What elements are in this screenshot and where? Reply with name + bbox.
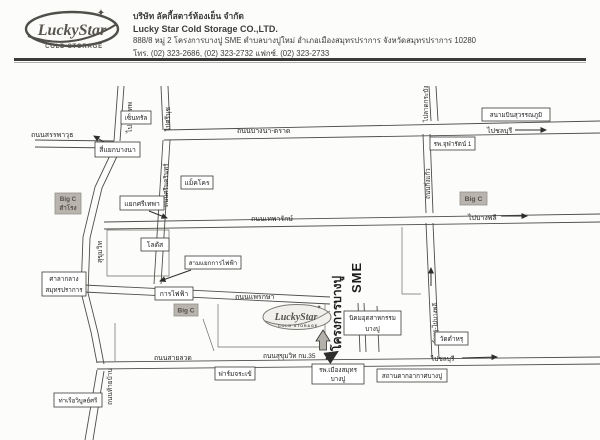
svg-text:วัดตำหรุ: วัดตำหรุ [440,335,464,343]
road-bangna-trat [164,133,600,140]
svg-text:แม็คโคร: แม็คโคร [184,178,210,187]
map-logo-star-icon: ✦ [316,304,321,311]
svg-text:แยกศรีเทพา: แยกศรีเทพา [124,200,160,208]
svg-text:โลตัส: โลตัส [147,240,164,249]
block-west-of-tamru [402,227,421,294]
block-edge-diagonal [203,319,214,351]
map-logo-subtitle-text: COLD STORAGE [278,324,318,328]
sukhumvit-km35-arrow [326,352,337,359]
svg-text:สำโรง: สำโรง [59,204,76,212]
place-box-hospital-bangpu: รพ.เมืองสมุทร บางปู [312,364,364,384]
svg-text:สมุทรปราการ: สมุทรปราการ [45,287,83,294]
place-box-samyaek-kanfaifa: สามแยกการไฟฟ้า [185,256,241,269]
place-box-lotus: โลตัส [141,238,169,251]
road-sukhumvit-north [114,86,118,141]
place-box-crocodile-farm: ฟาร์มจระเข้ [215,367,255,380]
road-bangna-trat [164,121,600,130]
svg-text:บางปู: บางปู [331,376,346,383]
svg-text:Big C: Big C [178,308,195,315]
place-box-suvarnabhumi-airport: สนามบินสุวรรณภูมิ [482,108,550,121]
map-logo-brand-text: LuckyStar [274,312,318,323]
road-label-kingkaeo: ถนนกิ่งแก้ว [423,168,432,199]
svg-text:ท่าเรือวิบูลย์ศรี: ท่าเรือวิบูลย์ศรี [59,397,98,405]
scanned-letterhead-map-page: { "logo": { "brand": "LuckyStar", "cold_… [0,0,600,440]
place-box-cityhall: ศาลากลาง สมุทรปราการ [42,272,86,296]
svg-text:รพ.จุฬารัตน์ 1: รพ.จุฬารัตน์ 1 [434,140,472,148]
road-label-to-latkrabang: ไปลาดกระบัง [422,86,430,123]
road-label-to-chonburi-top: ไปชลบุรี [486,126,512,135]
road-labels: ไปกรุงเทพ ถนนสรรพาวุธ ไปศรีนุช ถนนบางนา-… [31,86,512,405]
place-box-kanfaifa: การไฟฟ้า [155,287,193,300]
road-label-sanphawut: ถนนสรรพาวุธ [31,132,73,139]
road-label-phraeksa: ถนนแพรกษา [235,294,275,301]
place-box-makro: แม็คโคร [181,176,213,189]
svg-text:สี่แยกบางนา: สี่แยกบางนา [99,145,136,154]
svg-text:การไฟฟ้า: การไฟฟ้า [160,290,189,298]
road-latkrabang [436,86,438,121]
place-box-srithepha: แยกศรีเทพา [120,196,164,210]
road-tamru [426,223,432,359]
road-srinakarin [154,140,163,284]
place-box-bigc-paknam: Big C [174,304,198,316]
road-label-to-chonburi-bottom: ไปชลบุรี [430,355,455,363]
place-box-bangpu-resort: สถานตากอากาศบางปู [377,369,447,382]
road-label-sailuat: ถนนสายลวด [154,355,192,362]
road-label-thaiban: ถนนท้ายบ้าน [106,368,114,405]
label-sme: SME [349,262,364,293]
place-box-bigc-samrong: Big C สำโรง [55,193,81,214]
road-label-to-bangphli: ไปบางพลี [467,213,497,222]
road-srinakarin-north [161,86,163,130]
svg-text:ฟาร์มจระเข้: ฟาร์มจระเข้ [218,370,251,378]
svg-text:สามแยกการไฟฟ้า: สามแยกการไฟฟ้า [189,259,238,267]
place-box-pier: ท่าเรือวิบูลย์ศรี [54,393,102,407]
svg-text:สถานตากอากาศบางปู: สถานตากอากาศบางปู [382,373,442,380]
road-label-theparak: ถนนเทพารักษ์ [251,215,293,223]
svg-text:นิคมอุตสาหกรรม: นิคมอุตสาหกรรม [349,314,396,322]
location-map: ไปกรุงเทพ ถนนสรรพาวุธ ไปศรีนุช ถนนบางนา-… [0,0,600,440]
road-theparak [104,214,600,222]
label-project-bangpu: โครงการบางปู [329,276,345,352]
svg-text:บางปู: บางปู [365,326,380,333]
road-label-bangna-trat: ถนนบางนา-ตราด [237,128,290,135]
place-box-bigc-kingkaeo: Big C [460,192,487,205]
place-box-wat-tamru: วัดตำหรุ [435,332,468,345]
road-phraeksa [84,292,330,304]
svg-text:Big C: Big C [465,196,483,203]
svg-text:Big C: Big C [60,196,77,203]
svg-text:เซ็นทรัล: เซ็นทรัล [125,113,148,122]
road-phraeksa [84,285,330,297]
svg-text:รพ.เมืองสมุทร: รพ.เมืองสมุทร [319,366,358,374]
road-label-sukhumvit: สุขุมวิท [96,240,104,263]
road-label-to-srinuch: ไปศรีนุช [164,107,172,132]
block-lotus [107,230,169,276]
samyaek-kanfaifa-pointer [160,270,191,281]
road-theparak [104,222,600,229]
place-box-central: เซ็นทรัล [121,111,151,124]
road-label-sukhumvit-km35: ถนนสุขุมวิท กม.35 [263,352,316,360]
luckystar-map-logo: LuckyStar ✦ COLD STORAGE [263,304,331,330]
svg-text:สนามบินสุวรรณภูมิ: สนามบินสุวรรณภูมิ [490,111,542,119]
place-box-nikhom-bangpu: นิคมอุตสาหกรรม บางปู [344,311,401,335]
road-lines [35,86,600,440]
svg-text:ศาลากลาง: ศาลากลาง [49,276,78,283]
place-box-bangna-intersection: สี่แยกบางนา [95,142,140,157]
place-box-chularat-hospital: รพ.จุฬารัตน์ 1 [430,137,475,150]
